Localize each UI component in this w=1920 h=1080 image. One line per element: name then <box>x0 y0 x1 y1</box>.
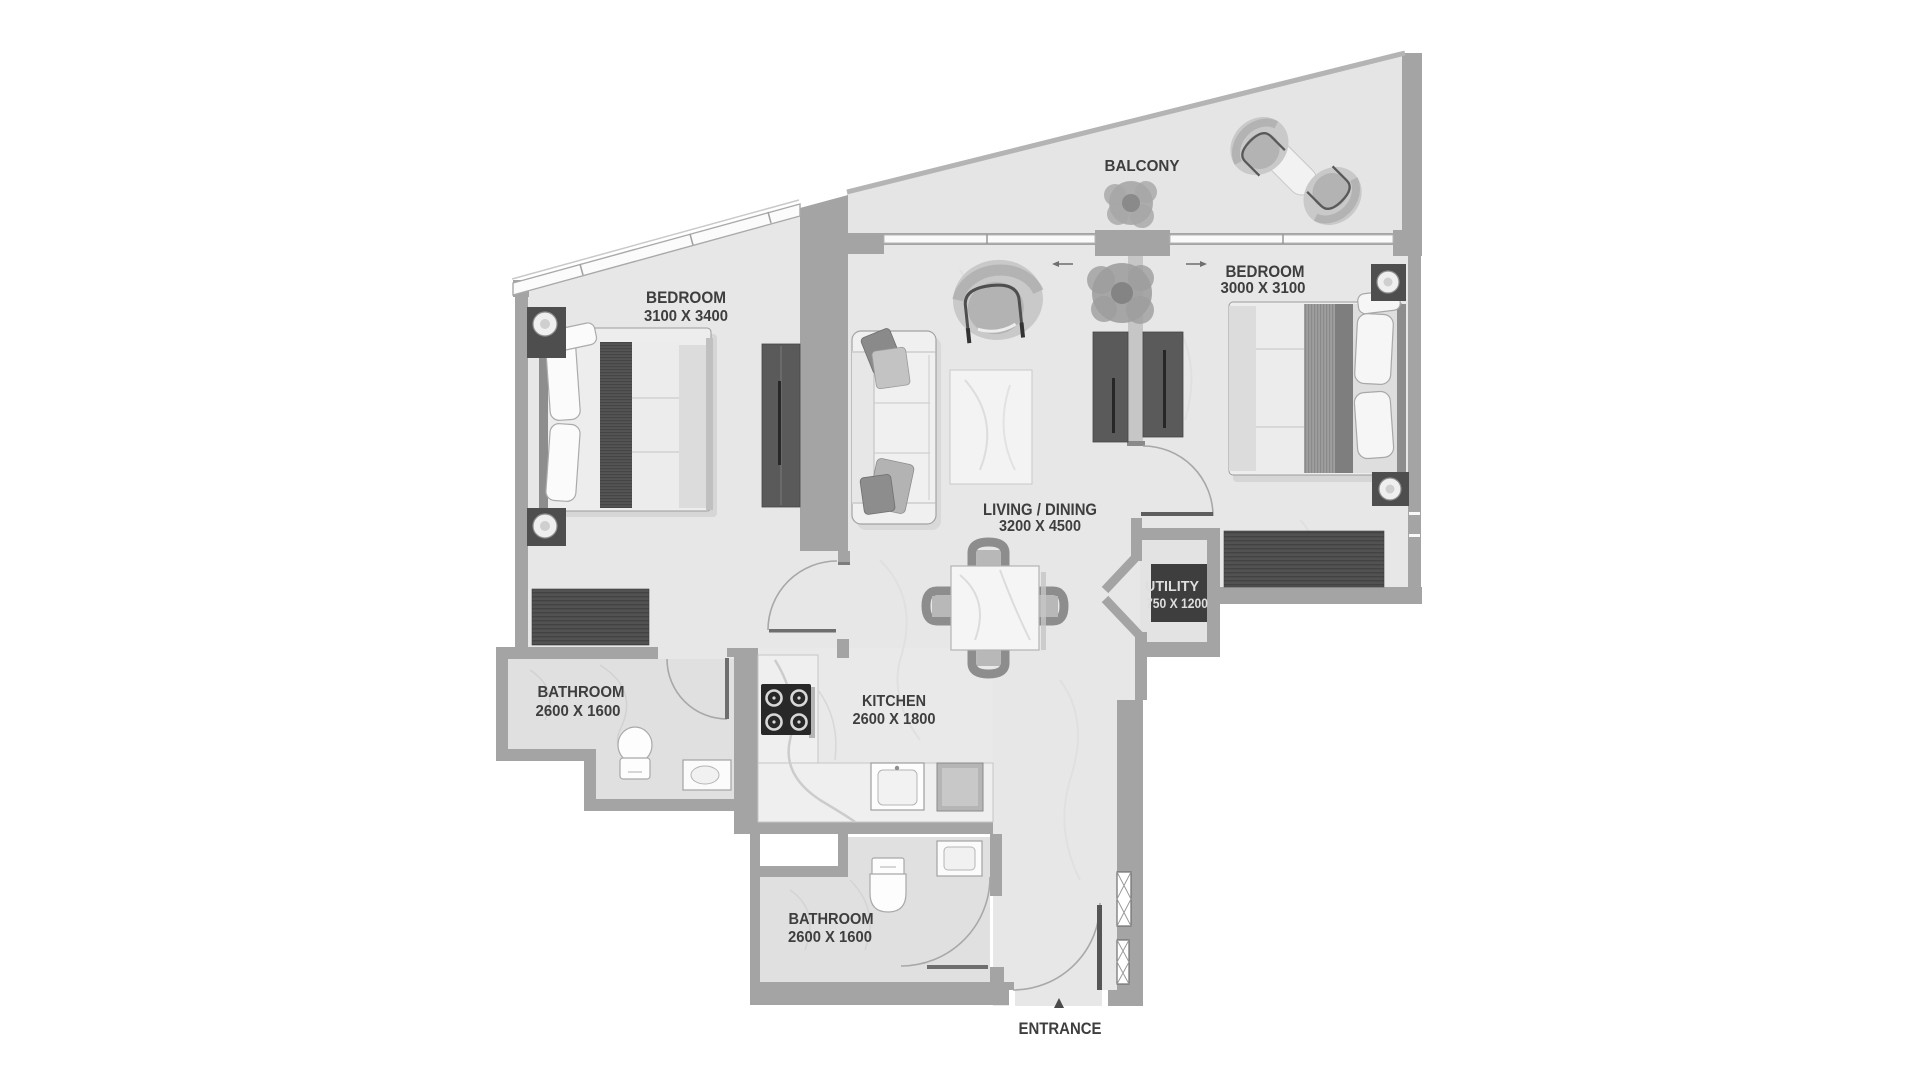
svg-text:BATHROOM: BATHROOM <box>789 911 874 928</box>
svg-text:3100 X 3400: 3100 X 3400 <box>644 308 728 325</box>
svg-text:BEDROOM: BEDROOM <box>646 288 726 307</box>
svg-text:3000 X 3100: 3000 X 3100 <box>1221 280 1306 297</box>
svg-text:3200 X 4500: 3200 X 4500 <box>999 518 1081 535</box>
svg-text:BEDROOM: BEDROOM <box>1226 262 1305 281</box>
svg-text:BALCONY: BALCONY <box>1105 158 1180 175</box>
svg-text:2600 X 1800: 2600 X 1800 <box>853 711 936 728</box>
svg-text:2600 X 1600: 2600 X 1600 <box>536 703 621 720</box>
svg-text:BATHROOM: BATHROOM <box>538 684 625 701</box>
svg-text:UTILITY: UTILITY <box>1145 578 1199 595</box>
svg-text:ENTRANCE: ENTRANCE <box>1019 1019 1102 1038</box>
svg-text:750 X 1200: 750 X 1200 <box>1146 595 1208 611</box>
svg-text:2600 X 1600: 2600 X 1600 <box>788 929 872 946</box>
svg-text:LIVING / DINING: LIVING / DINING <box>983 500 1097 519</box>
svg-text:KITCHEN: KITCHEN <box>862 693 926 710</box>
